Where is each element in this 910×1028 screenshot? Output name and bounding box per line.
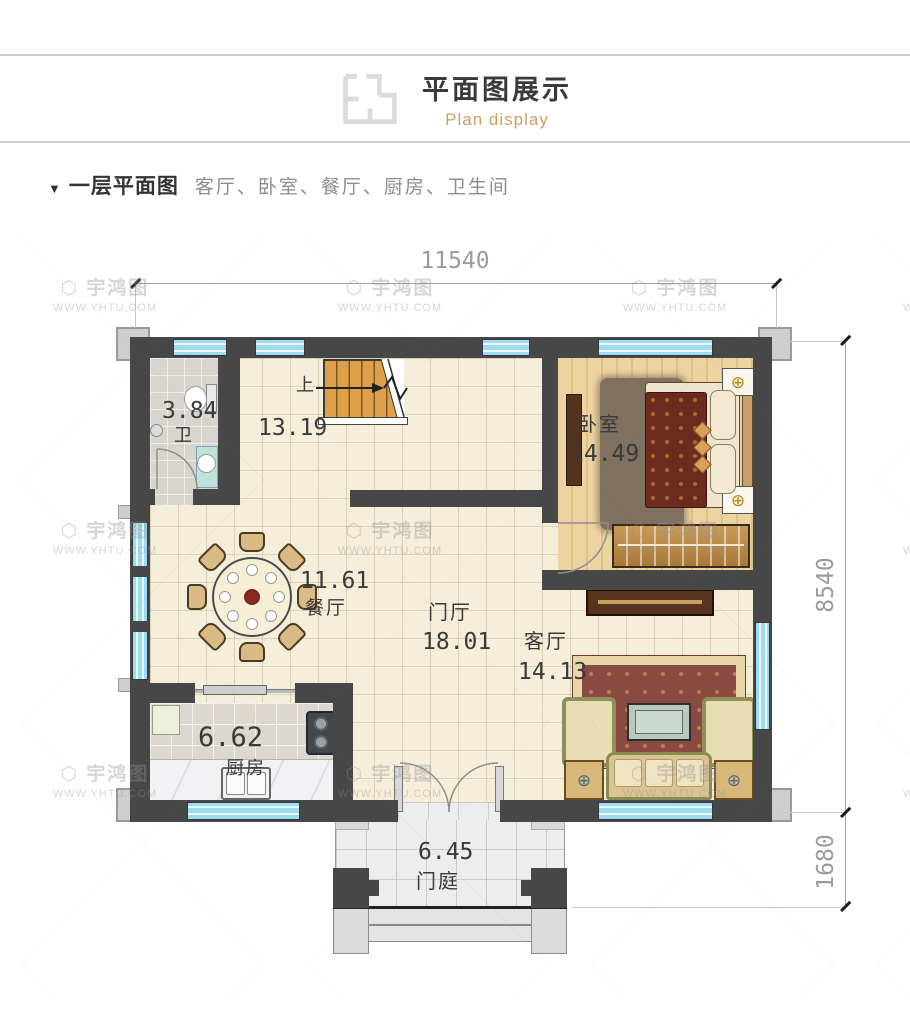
entry-threshold xyxy=(398,802,500,820)
porch-column-left xyxy=(333,868,369,908)
dimension-line-top xyxy=(135,283,777,284)
place-setting xyxy=(246,564,258,576)
stove xyxy=(306,711,336,755)
porch-step xyxy=(368,925,532,942)
porch-step xyxy=(368,908,532,925)
window-bedroom-top xyxy=(598,339,713,356)
bedroom-tv-cabinet xyxy=(566,394,582,486)
place-setting xyxy=(273,591,285,603)
foyer-area-label: 18.01 xyxy=(422,631,491,654)
kitchen-area-label: 6.62 xyxy=(198,724,263,751)
place-setting xyxy=(219,591,231,603)
stairhall-area-label: 13.19 xyxy=(258,417,327,440)
window-dining-left xyxy=(132,522,148,680)
wall-bedroom-left xyxy=(542,358,558,523)
porch-step-block-right xyxy=(531,908,567,954)
watermark: ⬡ 宇鸿图WWW.YHTU.COM xyxy=(875,516,910,557)
dining-chair xyxy=(239,532,265,552)
wall-kitchen-top xyxy=(130,683,195,703)
extension-line xyxy=(782,812,844,813)
porch-name-label: 门庭 xyxy=(416,871,460,891)
bed-pillow xyxy=(710,444,736,494)
foyer-name-label: 门厅 xyxy=(428,602,472,622)
dimension-width-value: 11540 xyxy=(395,248,515,274)
side-table: ⊕ xyxy=(564,760,604,800)
dining-chair xyxy=(239,642,265,662)
extension-line xyxy=(786,341,844,342)
place-setting xyxy=(265,610,277,622)
bedroom-name-label: 卧室 xyxy=(577,414,621,434)
place-setting xyxy=(227,610,239,622)
dining-chair xyxy=(187,584,207,610)
bedroom-area-label: 14.49 xyxy=(570,443,639,466)
wall-bathroom-right xyxy=(218,358,240,505)
shower-head xyxy=(150,424,163,437)
wall-kitchen-right xyxy=(333,683,353,822)
window-living-right xyxy=(755,622,770,730)
window-stair-top xyxy=(255,339,305,356)
stair-landing xyxy=(318,417,408,425)
place-setting xyxy=(246,618,258,630)
sofa xyxy=(606,752,712,800)
window-mullion xyxy=(130,566,150,577)
coffee-table-top xyxy=(635,710,683,734)
wardrobe-rail xyxy=(618,544,744,546)
dimension-height-value: 8540 xyxy=(813,540,839,630)
place-setting xyxy=(265,572,277,584)
tv xyxy=(598,600,702,604)
page: 平面图展示 Plan display ▼ 一层平面图 客厅、卧室、餐厅、厨房、卫… xyxy=(0,0,910,1028)
sofa-cushion xyxy=(676,759,704,787)
place-setting xyxy=(227,572,239,584)
wardrobe xyxy=(612,524,750,568)
dining-name-label: 餐厅 xyxy=(305,599,347,618)
dimension-line-right xyxy=(845,341,846,907)
window-kitchen-bottom xyxy=(187,802,300,820)
kitchen-name-label: 厨房 xyxy=(226,760,266,778)
wall-bathroom-bottom xyxy=(193,489,240,505)
staircase xyxy=(323,359,403,419)
floor-plan: ⊕ ⊕ ⊕ ⊕ xyxy=(0,0,910,1028)
bed-pillow xyxy=(710,390,736,440)
bathroom-area-label: 3.84 xyxy=(162,400,217,423)
porch-column-right xyxy=(531,868,567,908)
table-centerpiece xyxy=(244,589,260,605)
kitchen-slide-door xyxy=(203,685,267,695)
side-table: ⊕ xyxy=(714,760,754,800)
window-living-bottom xyxy=(598,802,713,820)
window-bathroom-top xyxy=(173,339,227,356)
extension-line xyxy=(776,284,777,328)
window-mullion xyxy=(130,621,150,632)
porch-column-stub xyxy=(369,880,379,896)
fridge xyxy=(152,705,180,735)
watermark: ⬡ 宇鸿图WWW.YHTU.COM xyxy=(875,759,910,800)
bathroom-sink xyxy=(197,454,216,473)
extension-line xyxy=(572,907,844,908)
watermark: ⬡ 宇鸿图WWW.YHTU.COM xyxy=(595,273,755,314)
watermark: ⬡ 宇鸿图WWW.YHTU.COM xyxy=(310,273,470,314)
sofa-cushion xyxy=(645,759,673,787)
living-area-label: 14.13 xyxy=(518,661,587,684)
wall-bathroom-bottom xyxy=(150,489,155,505)
porch-step-block-left xyxy=(333,908,369,954)
dimension-porch-value: 1680 xyxy=(813,817,839,907)
living-name-label: 客厅 xyxy=(524,631,568,651)
extension-line xyxy=(135,284,136,328)
stair-up-label: 上 xyxy=(296,377,316,395)
porch-column-stub xyxy=(521,880,531,896)
sofa-cushion xyxy=(614,759,642,787)
porch-area-label: 6.45 xyxy=(418,841,473,864)
watermark: ⬡ 宇鸿图WWW.YHTU.COM xyxy=(875,273,910,314)
window-hall-top xyxy=(482,339,530,356)
wall-bedroom-bottom xyxy=(542,570,772,590)
wall-hall-divider xyxy=(350,490,558,507)
dining-area-label: 11.61 xyxy=(300,570,369,593)
watermark: ⬡ 宇鸿图WWW.YHTU.COM xyxy=(25,273,185,314)
bathroom-name-label: 卫 xyxy=(174,427,194,445)
